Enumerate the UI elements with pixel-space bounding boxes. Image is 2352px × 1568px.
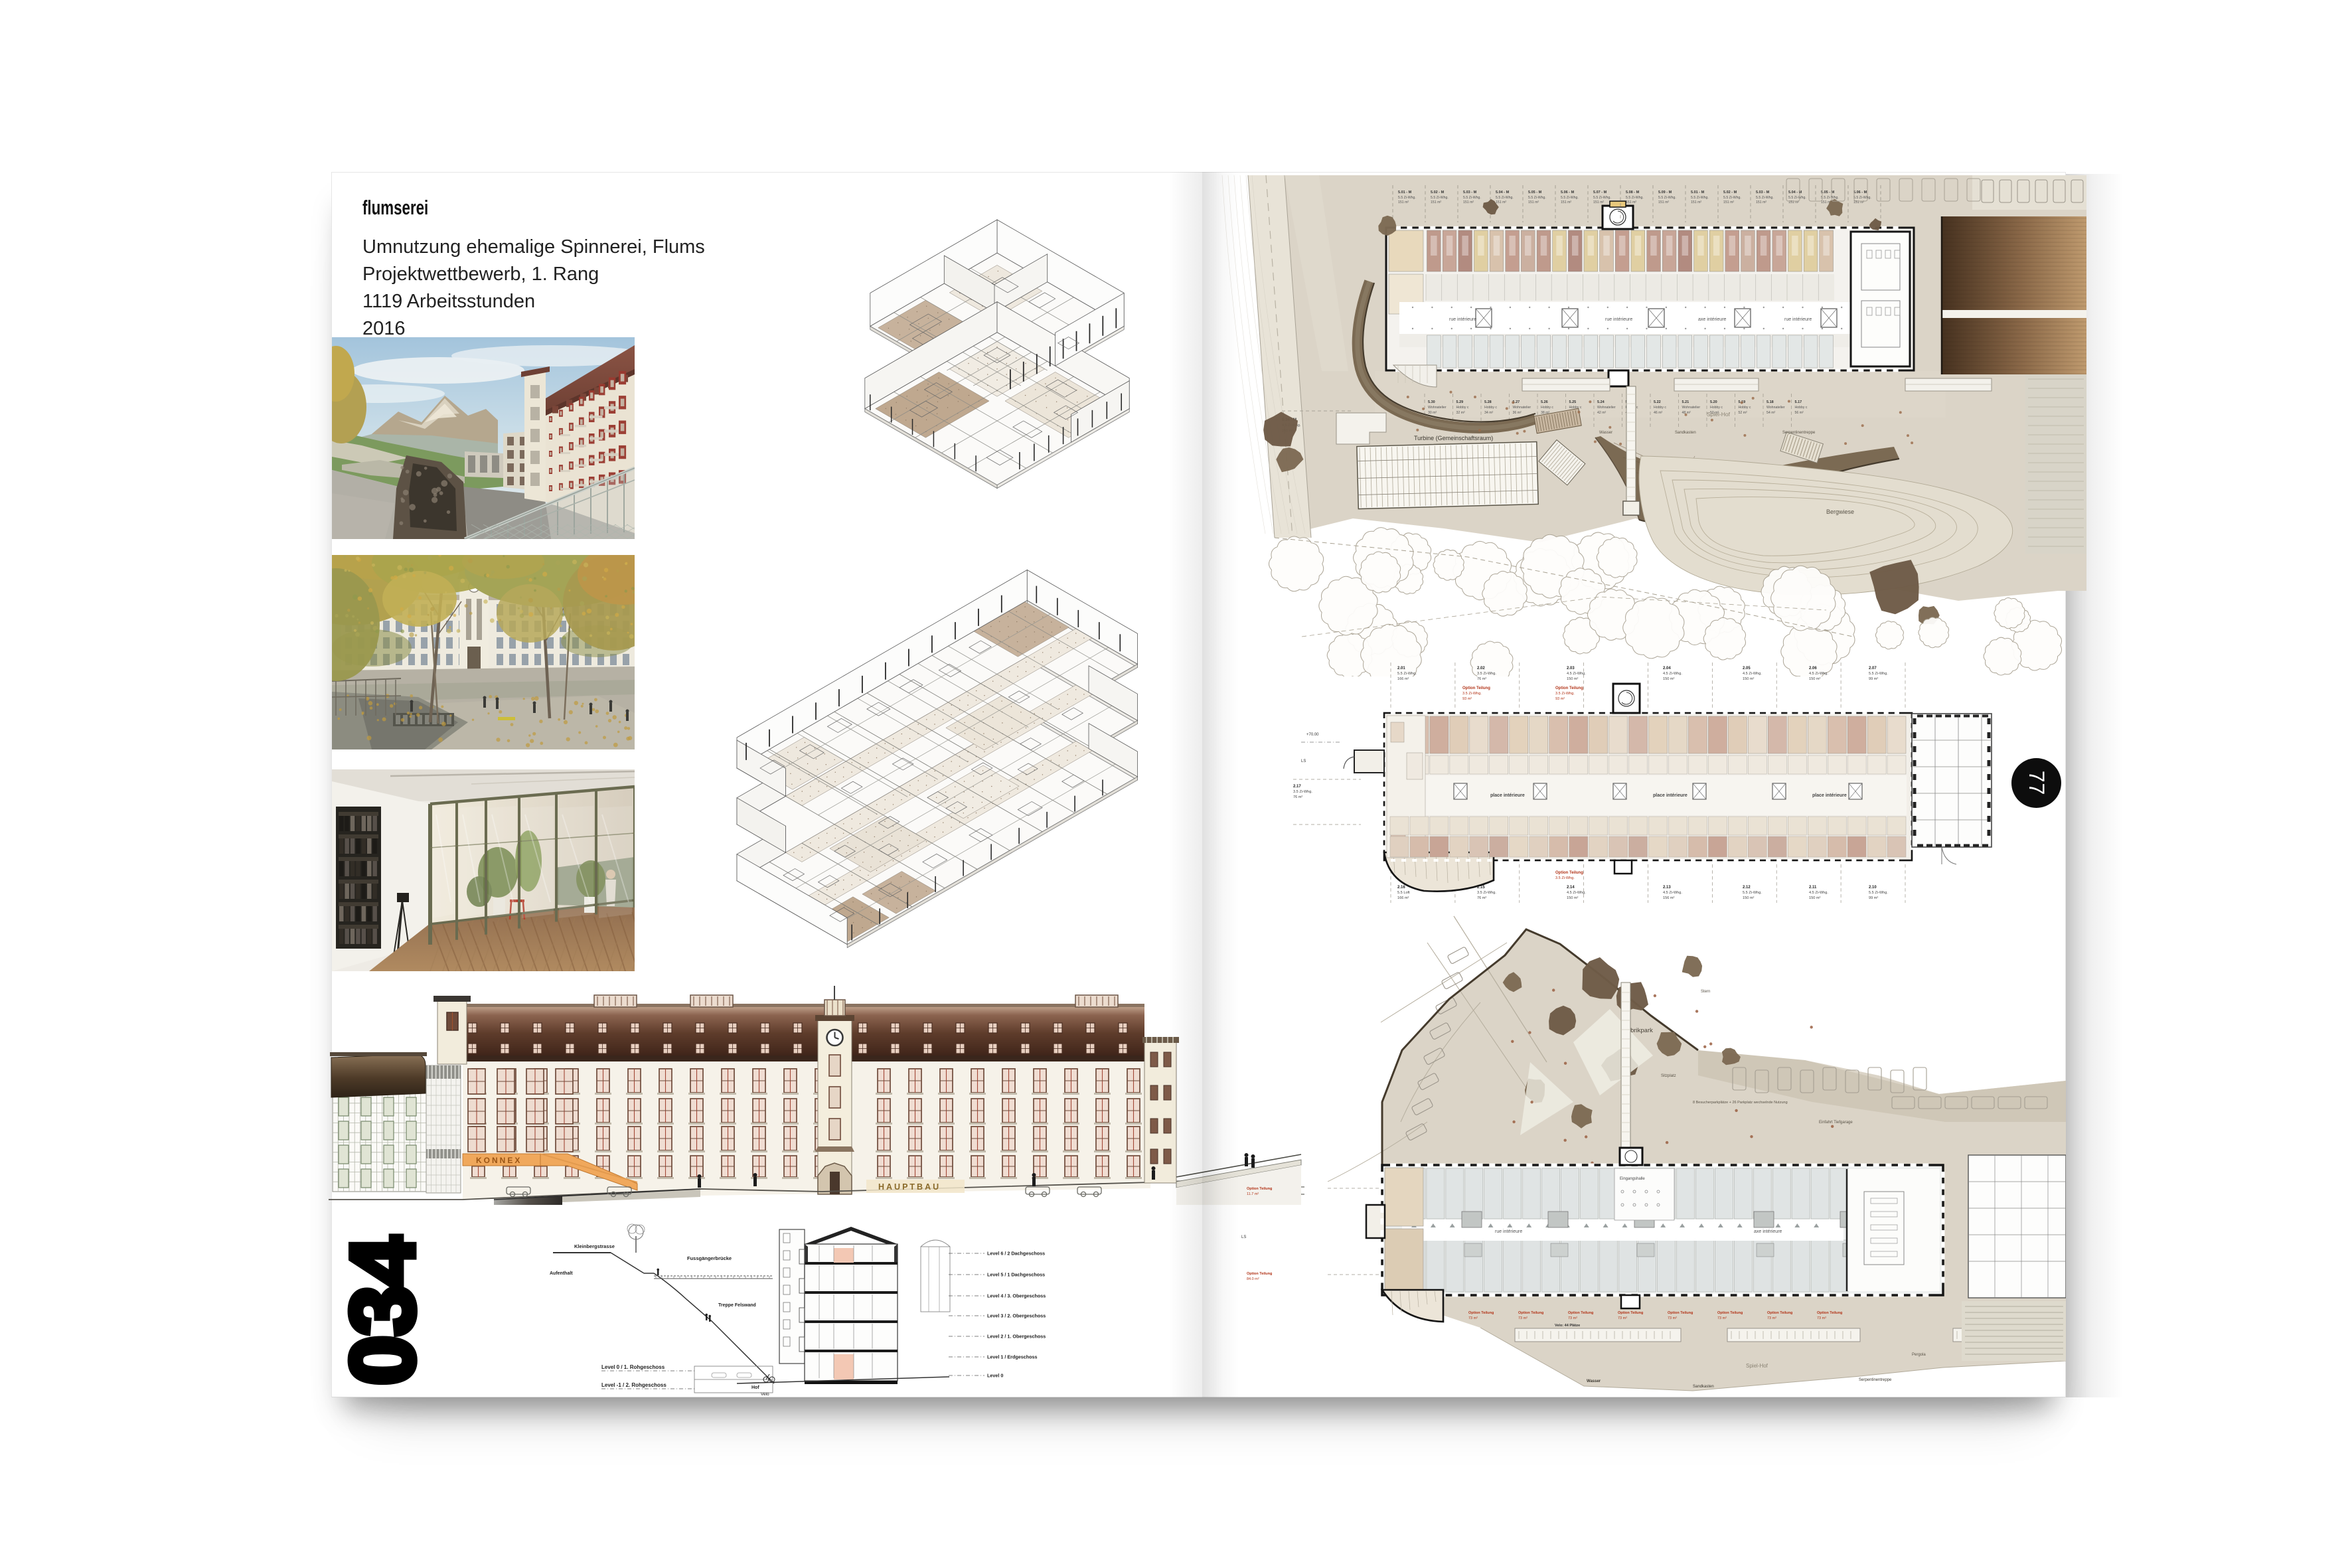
svg-text:4.5 Zi-Whg.: 4.5 Zi-Whg. (1567, 672, 1586, 676)
svg-text:2.12: 2.12 (1743, 886, 1751, 890)
svg-text:Option Teilung: Option Teilung (1462, 686, 1490, 690)
svg-text:Hobby c: Hobby c (1541, 406, 1553, 410)
svg-text:Velo: Velo (761, 1392, 769, 1397)
svg-text:76 m²: 76 m² (1477, 677, 1486, 681)
svg-text:Level 1 / Erdgeschoss: Level 1 / Erdgeschoss (987, 1354, 1038, 1360)
svg-text:Wasser: Wasser (1587, 1379, 1601, 1383)
svg-text:Aufenthalt: Aufenthalt (550, 1271, 573, 1276)
svg-text:5.07 - M: 5.07 - M (1593, 191, 1607, 195)
svg-text:84.0 m²: 84.0 m² (1247, 1277, 1259, 1281)
svg-text:56 m²: 56 m² (1795, 411, 1804, 415)
svg-text:Wohnatelier: Wohnatelier (1513, 406, 1531, 410)
svg-text:3.5 Zi-Whg.: 3.5 Zi-Whg. (1555, 876, 1575, 880)
svg-text:Pergola: Pergola (1912, 1353, 1926, 1357)
svg-text:150 m²: 150 m² (1663, 677, 1675, 681)
svg-text:5.5 Zi-Whg.: 5.5 Zi-Whg. (1397, 672, 1417, 676)
svg-text:52 m²: 52 m² (1739, 411, 1748, 415)
svg-text:Option Teilung: Option Teilung (1247, 1272, 1272, 1276)
svg-text:5.06 - M: 5.06 - M (1853, 191, 1867, 195)
svg-text:151 m²: 151 m² (1658, 200, 1669, 204)
svg-text:KONNEX: KONNEX (476, 1156, 522, 1165)
svg-text:2.10: 2.10 (1869, 886, 1877, 890)
svg-text:4.5 Zi-Whg.: 4.5 Zi-Whg. (1663, 672, 1682, 676)
svg-text:5.17: 5.17 (1795, 400, 1802, 404)
svg-text:150 m²: 150 m² (1743, 677, 1755, 681)
svg-text:5.5 Zi-Whg.: 5.5 Zi-Whg. (1431, 196, 1449, 200)
svg-text:151 m²: 151 m² (1691, 200, 1701, 204)
svg-text:5.18: 5.18 (1766, 400, 1774, 404)
svg-text:Option Teilung: Option Teilung (1767, 1311, 1792, 1315)
svg-text:151 m²: 151 m² (1528, 200, 1539, 204)
svg-text:8 Besucherparkplätze + 26 Park: 8 Besucherparkplätze + 26 Parkplatz wech… (1693, 1101, 1788, 1105)
svg-text:2.03: 2.03 (1567, 666, 1575, 670)
svg-text:2.14: 2.14 (1567, 886, 1575, 890)
svg-text:Wohnatelier: Wohnatelier (1597, 406, 1616, 410)
svg-text:151 m²: 151 m² (1431, 200, 1441, 204)
svg-text:rue intérieure: rue intérieure (1784, 317, 1812, 322)
svg-text:5.5 Zi-Whg.: 5.5 Zi-Whg. (1788, 196, 1806, 200)
svg-text:5.5 Zi-Whg.: 5.5 Zi-Whg. (1561, 196, 1579, 200)
svg-text:5.24: 5.24 (1597, 400, 1605, 404)
svg-text:Option Teilung: Option Teilung (1555, 871, 1583, 875)
svg-text:Hobby c: Hobby c (1739, 406, 1751, 410)
svg-text:156 m²: 156 m² (1663, 896, 1675, 900)
svg-text:4.5 Zi-Whg.: 4.5 Zi-Whg. (1663, 891, 1682, 895)
svg-text:5.04 - M: 5.04 - M (1496, 191, 1510, 195)
svg-text:Wohnatelier: Wohnatelier (1428, 406, 1447, 410)
svg-text:5.5 Zi-Whg.: 5.5 Zi-Whg. (1743, 891, 1762, 895)
svg-text:Hobby c: Hobby c (1710, 406, 1723, 410)
svg-text:4.5 Zi-Whg.: 4.5 Zi-Whg. (1809, 891, 1828, 895)
svg-text:2.13: 2.13 (1663, 886, 1671, 890)
svg-text:36 m²: 36 m² (1513, 411, 1522, 415)
svg-text:5.02 - M: 5.02 - M (1431, 191, 1445, 195)
svg-text:Stern: Stern (1701, 990, 1710, 994)
svg-text:+70.00: +70.00 (1306, 733, 1319, 737)
svg-text:5.5 Loft: 5.5 Loft (1397, 891, 1410, 895)
svg-text:Option Teilung: Option Teilung (1717, 1311, 1743, 1315)
svg-text:3.5 Zi-Whg.: 3.5 Zi-Whg. (1462, 692, 1482, 696)
svg-text:5.20: 5.20 (1710, 400, 1717, 404)
svg-text:axe intérieure: axe intérieure (1698, 317, 1727, 322)
svg-text:5.03 - M: 5.03 - M (1756, 191, 1770, 195)
svg-text:5.5 Zi-Whg.: 5.5 Zi-Whg. (1626, 196, 1644, 200)
svg-text:Bergwiese: Bergwiese (1826, 509, 1854, 515)
svg-text:axe intérieure: axe intérieure (1754, 1229, 1782, 1234)
svg-text:Sandkasten: Sandkasten (1693, 1385, 1714, 1389)
svg-text:Option Teilung: Option Teilung (1618, 1311, 1643, 1315)
svg-text:3.5 Zi-Whg.: 3.5 Zi-Whg. (1293, 790, 1312, 794)
svg-text:LS: LS (1241, 1235, 1246, 1239)
svg-text:Option Teilung: Option Teilung (1817, 1311, 1842, 1315)
svg-text:76 m²: 76 m² (1293, 795, 1302, 799)
svg-text:99 m²: 99 m² (1869, 896, 1878, 900)
svg-text:150 m²: 150 m² (1567, 677, 1579, 681)
svg-text:2.16: 2.16 (1397, 886, 1405, 890)
svg-text:Hobby c: Hobby c (1484, 406, 1497, 410)
svg-text:Velo: 44 Plätze: Velo: 44 Plätze (1555, 1324, 1580, 1328)
svg-text:5.5 Zi-Whg.: 5.5 Zi-Whg. (1869, 672, 1888, 676)
svg-text:5.03 - M: 5.03 - M (1463, 191, 1477, 195)
svg-text:2.07: 2.07 (1869, 666, 1877, 670)
svg-text:5.09 - M: 5.09 - M (1658, 191, 1672, 195)
svg-text:76 m²: 76 m² (1477, 896, 1486, 900)
svg-text:5.5 Zi-Whg.: 5.5 Zi-Whg. (1691, 196, 1709, 200)
svg-text:Option Teilung: Option Teilung (1518, 1311, 1543, 1315)
svg-text:Wasser: Wasser (1599, 431, 1612, 435)
svg-text:151 m²: 151 m² (1463, 200, 1474, 204)
svg-text:Level 6 / 2 Dachgeschoss: Level 6 / 2 Dachgeschoss (987, 1251, 1045, 1257)
svg-text:2.17: 2.17 (1293, 785, 1301, 789)
svg-text:2.05: 2.05 (1743, 666, 1751, 670)
svg-text:Sandkasten: Sandkasten (1675, 431, 1696, 435)
svg-text:93 m²: 93 m² (1555, 697, 1565, 701)
svg-text:Level -1 / 2. Rohgeschoss: Level -1 / 2. Rohgeschoss (601, 1382, 666, 1388)
svg-text:73 m²: 73 m² (1717, 1316, 1727, 1320)
svg-text:151 m²: 151 m² (1593, 200, 1604, 204)
svg-text:2.01: 2.01 (1397, 666, 1405, 670)
svg-text:Serpentinentreppe: Serpentinentreppe (1782, 431, 1816, 435)
svg-text:place intérieure: place intérieure (1490, 793, 1525, 798)
svg-text:Option Teilung: Option Teilung (1468, 1311, 1494, 1315)
svg-text:5.08 - M: 5.08 - M (1626, 191, 1640, 195)
svg-text:46 m²: 46 m² (1654, 411, 1663, 415)
svg-text:150 m²: 150 m² (1743, 896, 1755, 900)
svg-text:73 m²: 73 m² (1817, 1316, 1826, 1320)
svg-text:5.5 Zi-Whg.: 5.5 Zi-Whg. (1723, 196, 1741, 200)
svg-text:4.5 Zi-Whg.: 4.5 Zi-Whg. (1567, 891, 1586, 895)
svg-text:73 m²: 73 m² (1767, 1316, 1776, 1320)
svg-text:2.06: 2.06 (1809, 666, 1817, 670)
svg-text:Wohnatelier: Wohnatelier (1766, 406, 1785, 410)
svg-text:Spiel-Hof: Spiel-Hof (1746, 1363, 1768, 1369)
svg-text:54 m²: 54 m² (1766, 411, 1776, 415)
svg-text:HAUPTBAU: HAUPTBAU (878, 1182, 941, 1192)
svg-text:73 m²: 73 m² (1468, 1316, 1478, 1320)
svg-text:Level 0 / 1. Rohgeschoss: Level 0 / 1. Rohgeschoss (601, 1364, 665, 1370)
svg-text:Level 3 / 2. Obergeschoss: Level 3 / 2. Obergeschoss (987, 1313, 1046, 1319)
svg-text:5.5 Zi-Whg.: 5.5 Zi-Whg. (1593, 196, 1611, 200)
svg-text:Kleinbergstrasse: Kleinbergstrasse (574, 1243, 615, 1249)
svg-text:5.30: 5.30 (1428, 400, 1435, 404)
svg-text:Level 4 / 3. Obergeschoss: Level 4 / 3. Obergeschoss (987, 1293, 1046, 1299)
svg-text:73 m²: 73 m² (1618, 1316, 1627, 1320)
svg-text:151 m²: 151 m² (1496, 200, 1506, 204)
svg-text:99 m²: 99 m² (1869, 677, 1878, 681)
svg-text:93 m²: 93 m² (1462, 697, 1472, 701)
svg-text:5.5 Zi-Whg.: 5.5 Zi-Whg. (1528, 196, 1546, 200)
svg-text:4.5 Zi-Whg.: 4.5 Zi-Whg. (1743, 672, 1762, 676)
svg-text:5.05 - M: 5.05 - M (1821, 191, 1835, 195)
svg-text:Eingangshalle: Eingangshalle (1620, 1177, 1645, 1181)
svg-text:Treppe Felswand: Treppe Felswand (718, 1303, 756, 1308)
svg-text:Option Teilung: Option Teilung (1668, 1311, 1693, 1315)
svg-text:Spiel-Hof: Spiel-Hof (1707, 411, 1731, 418)
svg-text:Hobby c: Hobby c (1654, 406, 1666, 410)
svg-text:5.21: 5.21 (1682, 400, 1689, 404)
svg-text:5.5 Zi-Whg.: 5.5 Zi-Whg. (1821, 196, 1839, 200)
svg-text:150 m²: 150 m² (1809, 896, 1821, 900)
svg-text:151 m²: 151 m² (1398, 200, 1409, 204)
svg-text:5.5 Zi-Whg.: 5.5 Zi-Whg. (1756, 196, 1774, 200)
svg-text:3.5 Zi-Whg.: 3.5 Zi-Whg. (1477, 672, 1496, 676)
svg-text:5.06 - M: 5.06 - M (1561, 191, 1575, 195)
svg-text:Level 0: Level 0 (987, 1373, 1003, 1379)
svg-text:Turbine (Gemeinschaftsraum): Turbine (Gemeinschaftsraum) (1414, 435, 1493, 441)
svg-text:LS: LS (1301, 759, 1306, 763)
svg-text:166 m²: 166 m² (1397, 896, 1409, 900)
svg-text:5.02 - M: 5.02 - M (1723, 191, 1737, 195)
svg-text:150 m²: 150 m² (1567, 896, 1579, 900)
svg-text:Wohnatelier: Wohnatelier (1682, 406, 1701, 410)
svg-text:11.7 m²: 11.7 m² (1247, 1192, 1259, 1196)
svg-text:Option Teilung: Option Teilung (1555, 686, 1583, 690)
svg-text:30 m²: 30 m² (1428, 411, 1437, 415)
svg-text:150 m²: 150 m² (1809, 677, 1821, 681)
svg-text:73 m²: 73 m² (1518, 1316, 1528, 1320)
svg-text:5.05 - M: 5.05 - M (1528, 191, 1542, 195)
svg-text:place intérieure: place intérieure (1653, 793, 1687, 798)
svg-text:Hobby c: Hobby c (1456, 406, 1469, 410)
svg-text:5.5 Zi-Whg.: 5.5 Zi-Whg. (1398, 196, 1416, 200)
svg-text:Hof: Hof (751, 1385, 759, 1390)
svg-text:5.5 Zi-Whg.: 5.5 Zi-Whg. (1658, 196, 1676, 200)
svg-text:3.5 Zi-Whg.: 3.5 Zi-Whg. (1555, 692, 1575, 696)
svg-text:151 m²: 151 m² (1561, 200, 1571, 204)
svg-text:5.22: 5.22 (1654, 400, 1661, 404)
svg-text:2.11: 2.11 (1809, 886, 1817, 890)
svg-text:rue intérieure: rue intérieure (1495, 1229, 1522, 1234)
svg-text:Level 5 / 1 Dachgeschoss: Level 5 / 1 Dachgeschoss (987, 1272, 1045, 1278)
svg-text:5.01 - M: 5.01 - M (1398, 191, 1412, 195)
svg-text:5.28: 5.28 (1484, 400, 1492, 404)
svg-text:42 m²: 42 m² (1597, 411, 1607, 415)
svg-text:rue intérieure: rue intérieure (1605, 317, 1632, 322)
svg-text:5.25: 5.25 (1569, 400, 1577, 404)
svg-text:2.04: 2.04 (1663, 666, 1671, 670)
svg-text:5.5 Zi-Whg.: 5.5 Zi-Whg. (1853, 196, 1871, 200)
svg-text:32 m²: 32 m² (1456, 411, 1466, 415)
svg-text:73 m²: 73 m² (1668, 1316, 1677, 1320)
svg-text:151 m²: 151 m² (1626, 200, 1636, 204)
svg-text:2.02: 2.02 (1477, 666, 1485, 670)
svg-text:5.29: 5.29 (1456, 400, 1464, 404)
svg-text:Level 2 / 1. Obergeschoss: Level 2 / 1. Obergeschoss (987, 1334, 1046, 1340)
svg-text:5.5 Zi-Whg.: 5.5 Zi-Whg. (1869, 891, 1888, 895)
svg-text:5.04 - M: 5.04 - M (1788, 191, 1802, 195)
svg-text:Serpentinentreppe: Serpentinentreppe (1859, 1378, 1892, 1382)
svg-text:166 m²: 166 m² (1397, 677, 1409, 681)
svg-text:151 m²: 151 m² (1723, 200, 1734, 204)
svg-text:151 m²: 151 m² (1756, 200, 1766, 204)
svg-text:Sitzplatz: Sitzplatz (1661, 1074, 1676, 1078)
svg-text:place intérieure: place intérieure (1812, 793, 1847, 798)
svg-text:5.01 - M: 5.01 - M (1691, 191, 1705, 195)
svg-text:5.5 Zi-Whg.: 5.5 Zi-Whg. (1496, 196, 1514, 200)
svg-text:34 m²: 34 m² (1484, 411, 1494, 415)
svg-text:Fussgängerbrücke: Fussgängerbrücke (687, 1255, 732, 1261)
svg-text:5.26: 5.26 (1541, 400, 1548, 404)
svg-text:Einfahrt Tiefgarage: Einfahrt Tiefgarage (1819, 1121, 1853, 1125)
svg-text:73 m²: 73 m² (1568, 1316, 1577, 1320)
svg-text:Hobby c: Hobby c (1795, 406, 1808, 410)
svg-text:Option Teilung: Option Teilung (1247, 1187, 1272, 1191)
svg-text:rue intérieure: rue intérieure (1449, 317, 1476, 322)
svg-text:5.5 Zi-Whg.: 5.5 Zi-Whg. (1463, 196, 1481, 200)
svg-text:Option Teilung: Option Teilung (1568, 1311, 1593, 1315)
svg-text:4.5 Zi-Whg.: 4.5 Zi-Whg. (1809, 672, 1828, 676)
svg-text:3.5 Zi-Whg.: 3.5 Zi-Whg. (1477, 891, 1496, 895)
